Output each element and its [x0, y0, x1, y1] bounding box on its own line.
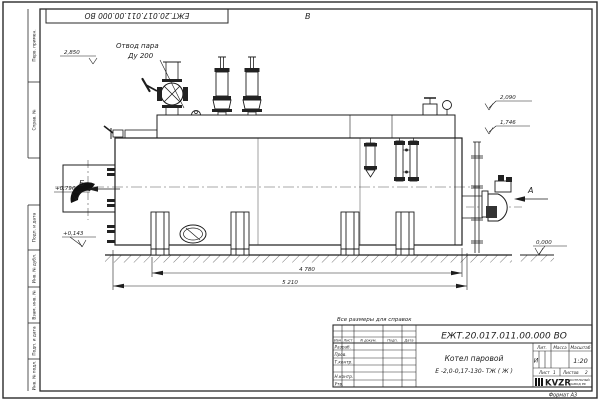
boiler-drawing-svg: ЕЖТ.20.017.011.00.000 ВО Перв. примен. С… [0, 0, 600, 400]
level-gauge-column [364, 138, 377, 177]
handwheel [143, 79, 150, 91]
support-leg [231, 212, 249, 255]
top-left-cock [104, 126, 123, 139]
view-arrow-right: А [514, 186, 548, 202]
boiler-body-group [55, 57, 554, 263]
col-podp: Подп. [387, 339, 398, 343]
steam-drum [157, 115, 455, 138]
support-leg [396, 212, 414, 255]
scale-value: 1:20 [573, 357, 588, 365]
svg-text:+0,796: +0,796 [55, 186, 76, 192]
elevation-mark: 2,090 [485, 95, 532, 110]
margin-label: Инв. № подл. [32, 361, 38, 391]
drum-right-valve [421, 98, 452, 115]
doc-number: ЕЖТ.20.017.011.00.000 ВО [441, 332, 567, 342]
lifting-lug [192, 111, 201, 116]
logo-caption-2: ЗАВОД РФ [570, 382, 587, 386]
ground-hatch-right [520, 256, 554, 262]
ground-hatch [105, 256, 512, 263]
left-wall-nozzles [107, 168, 115, 243]
margin-label: Справ. № [32, 109, 38, 130]
logo-text: KVZR [545, 379, 571, 389]
row-tkontr: Т.контр. [335, 360, 353, 365]
burner-fan [462, 175, 512, 221]
burner-block [486, 206, 497, 218]
margin-label: Подп. и дата [32, 213, 38, 243]
margin-label: Перв. примен. [32, 29, 38, 61]
svg-text:1,746: 1,746 [500, 120, 516, 126]
safety-valve [242, 57, 262, 115]
elevation-mark: 2,850 [60, 50, 97, 64]
elevation-mark: +0,143 [62, 231, 96, 247]
dim-text: 5 210 [282, 280, 298, 286]
drum-step [125, 130, 157, 138]
lit-value: И [534, 358, 539, 365]
margin-label: Подп. и дата [32, 326, 38, 356]
col-list: Лист [343, 339, 354, 343]
col-izm: Изм [334, 339, 341, 343]
stamp-number: ЕЖТ.20.017.011.00.000 ВО [85, 11, 190, 20]
reference-note: Все размеры для справок [337, 317, 412, 323]
support-leg [341, 212, 359, 255]
row-utv: Утв. [335, 382, 344, 387]
svg-text:А: А [527, 186, 533, 195]
sheet-label: Лист [538, 370, 550, 375]
sheets-label: Листов [562, 370, 579, 375]
format-label: Формат А3 [549, 393, 577, 399]
col-dokum: N докум. [360, 339, 376, 343]
margin-label: Взам. инв. № [32, 290, 38, 320]
title-block: Все размеры для справок [333, 317, 592, 389]
view-label-top: В [305, 12, 311, 21]
dim-text: 4 780 [299, 267, 315, 273]
scale-label: Масштаб [571, 345, 591, 350]
svg-text:2,090: 2,090 [500, 95, 516, 101]
elevation-mark: 0,000 [533, 240, 567, 255]
steam-outlet-label: Отвод пара [116, 42, 159, 50]
blueprint-page: ЕЖТ.20.017.011.00.000 ВО Перв. примен. С… [0, 0, 600, 400]
rear-pipe [471, 142, 483, 253]
lit-label: Лит. [536, 345, 547, 350]
safety-valve [212, 57, 232, 115]
water-gauge-glass [394, 138, 419, 181]
margin-label: Инв. № дубл. [32, 254, 38, 283]
row-razrab: Разраб. [335, 345, 351, 350]
logo-bars [535, 378, 537, 386]
sheet-value: 1 [553, 370, 556, 375]
steam-outlet-size: Ду 200 [127, 52, 154, 60]
svg-text:2,850: 2,850 [64, 50, 80, 56]
svg-text:Б: Б [79, 179, 85, 188]
svg-text:0,000: 0,000 [536, 240, 552, 246]
svg-text:+0,143: +0,143 [63, 231, 84, 237]
elevation-mark: 1,746 [485, 120, 530, 134]
support-leg [151, 212, 169, 255]
col-data: Дата [403, 339, 413, 343]
sheets-value: 2 [585, 370, 588, 375]
row-prov: Пров. [335, 352, 347, 357]
product-type: Е -2,0-0,17-130- ТЖ ( Ж ) [435, 368, 513, 375]
annotations-group: Отвод пара Ду 200 2,850 2,090 1,746 +0,7… [54, 12, 567, 290]
row-nkontr: Н.контр. [335, 374, 354, 379]
manhole [180, 225, 206, 243]
mass-label: Масса [553, 345, 567, 350]
product-name: Котел паровой [445, 354, 504, 363]
